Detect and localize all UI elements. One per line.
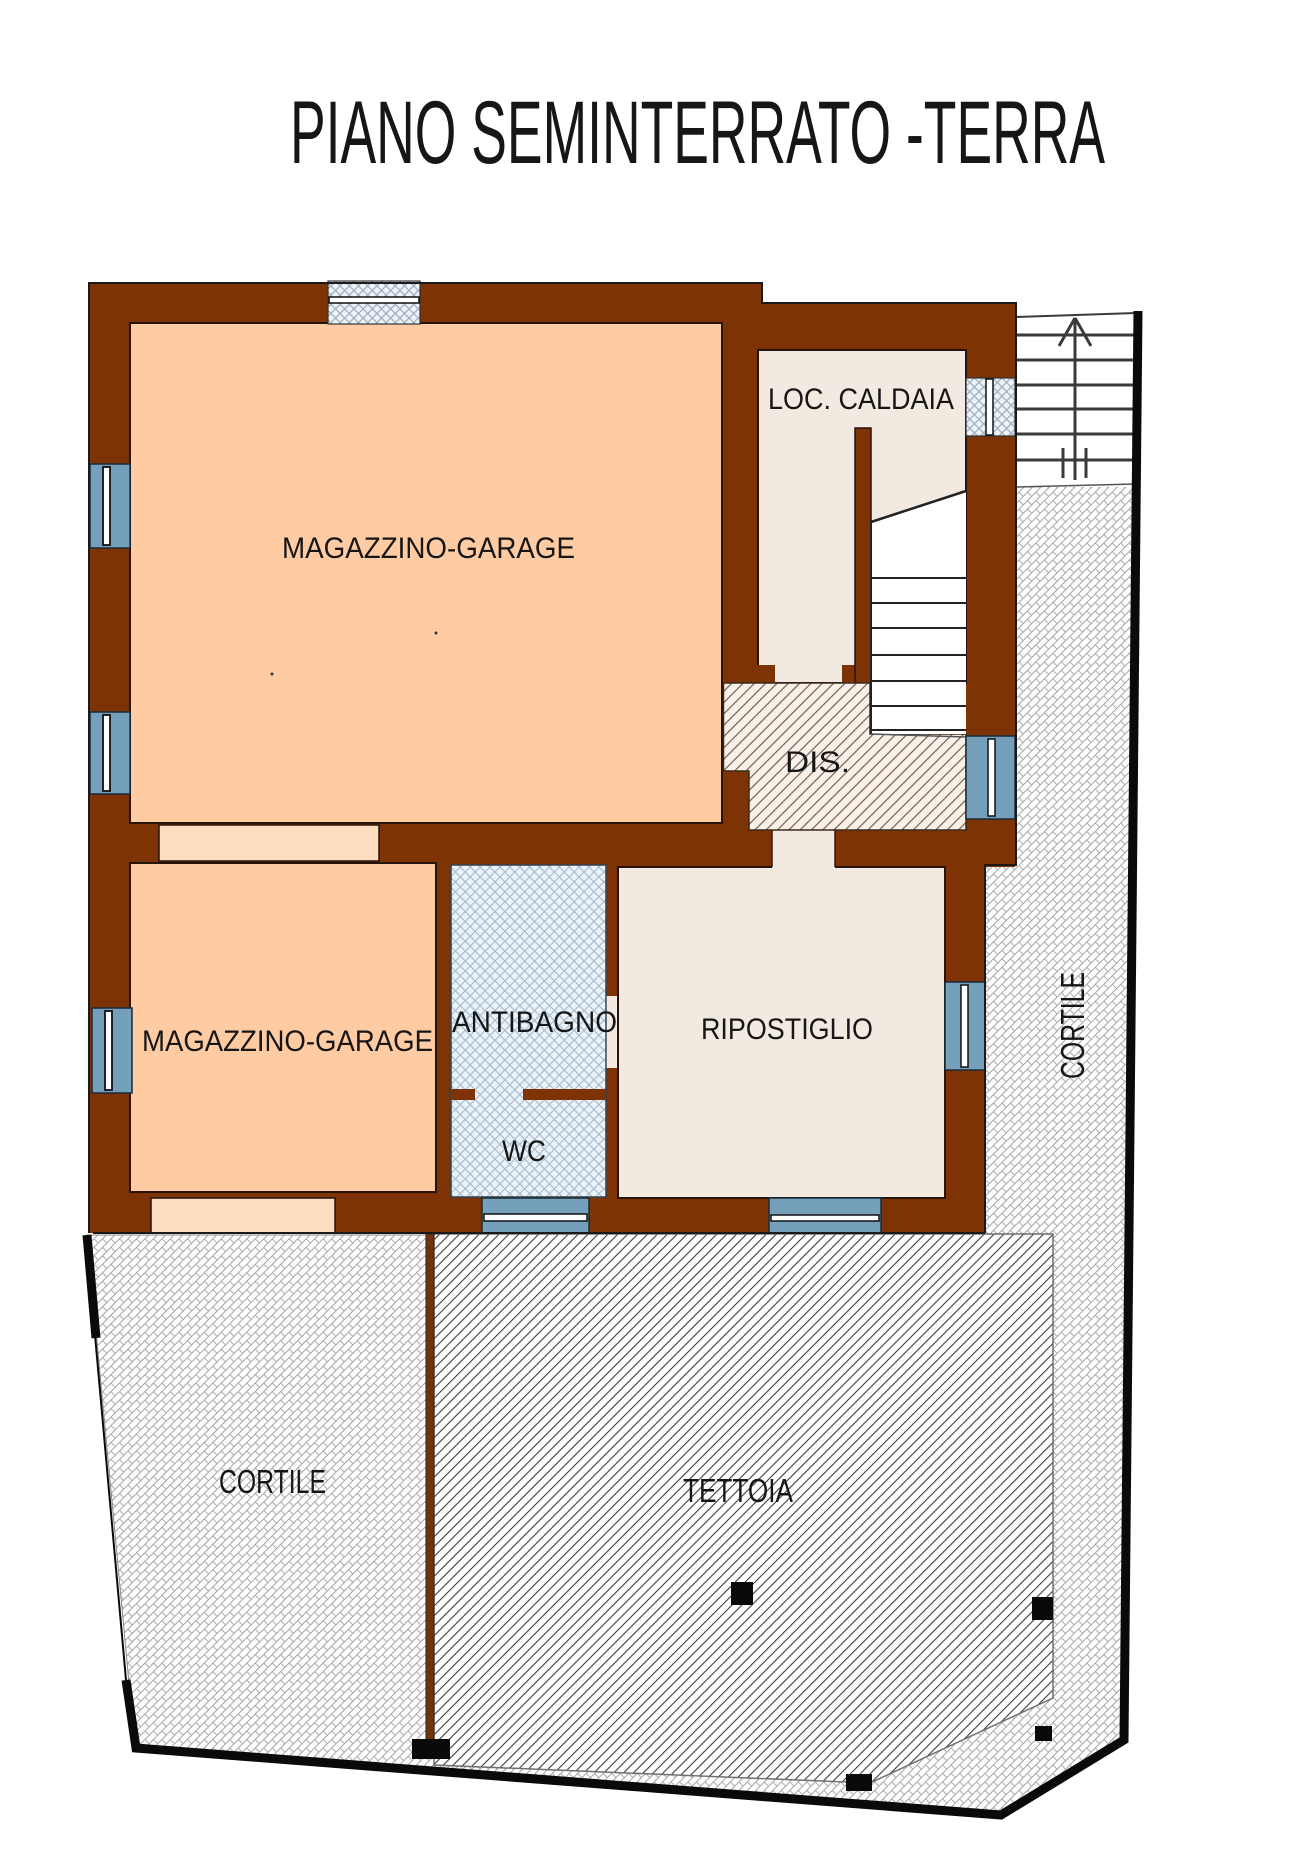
svg-text:MAGAZZINO-GARAGE: MAGAZZINO-GARAGE	[142, 1025, 433, 1058]
svg-text:MAGAZZINO-GARAGE: MAGAZZINO-GARAGE	[282, 532, 575, 565]
svg-text:CORTILE: CORTILE	[1054, 972, 1091, 1079]
svg-text:RIPOSTIGLIO: RIPOSTIGLIO	[701, 1013, 873, 1046]
svg-text:PIANO SEMINTERRATO -TERRA: PIANO SEMINTERRATO -TERRA	[290, 82, 1105, 182]
svg-text:LOC. CALDAIA: LOC. CALDAIA	[768, 383, 954, 416]
svg-text:ANTIBAGNO: ANTIBAGNO	[452, 1006, 617, 1039]
svg-text:CORTILE: CORTILE	[219, 1463, 326, 1500]
svg-text:WC: WC	[502, 1135, 546, 1168]
svg-text:TETTOIA: TETTOIA	[683, 1472, 793, 1509]
svg-text:DIS.: DIS.	[785, 746, 850, 779]
